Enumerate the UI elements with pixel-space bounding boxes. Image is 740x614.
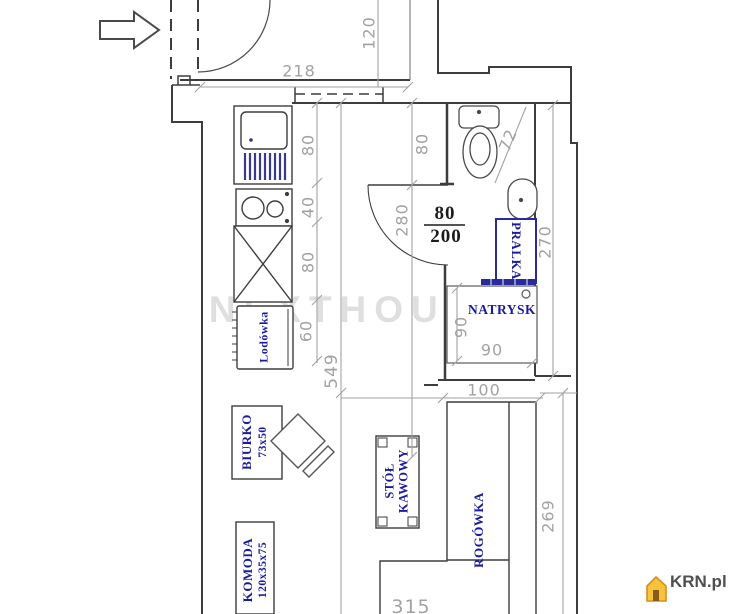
dim-bath-length: 270 (536, 225, 555, 259)
desk-label: BIURKO (239, 414, 255, 470)
coffee-table-label-2: KAWOWY (397, 449, 412, 513)
dim-entry-depth: 120 (360, 16, 379, 50)
krn-house-icon (647, 577, 666, 601)
fridge-label: Lodówka (257, 311, 272, 363)
dim-fridge: 60 (297, 320, 316, 342)
dresser-size-label: 120x35x75 (257, 542, 269, 598)
sink-drainer (245, 153, 285, 180)
shower-label: NATRYSK (468, 302, 536, 318)
dim-entry-width: 218 (282, 62, 316, 81)
dim-room-length: 549 (322, 353, 342, 388)
dim-sink: 80 (299, 134, 318, 156)
floor-plan-drawing (0, 0, 740, 614)
kitchen-cabinet (234, 226, 292, 302)
dim-shower-width: 90 (481, 341, 503, 360)
door-size-height: 200 (430, 226, 462, 248)
coffee-table-label-1: STÓŁ (383, 463, 398, 498)
bathroom-sink (508, 179, 537, 219)
corner-sofa-label: ROGÓWKA (471, 492, 487, 568)
dim-bath-width: 100 (467, 381, 501, 400)
dim-cabinet: 80 (299, 251, 318, 273)
logo-text: KRN.pl (670, 572, 727, 592)
dim-shower-depth: 90 (452, 316, 471, 338)
dresser-label: KOMODA (240, 538, 256, 602)
dim-living-width: 315 (391, 596, 430, 614)
dim-hob: 40 (299, 196, 318, 218)
entrance-arrow-icon (100, 12, 159, 48)
toilet (459, 106, 499, 178)
kitchen-sink-unit (234, 106, 292, 184)
washer-label: PRALKA (508, 222, 524, 280)
floor-plan: NEXTHOUSE (0, 0, 740, 614)
kitchen-hob (236, 189, 292, 226)
entrance-door (198, 0, 270, 72)
dim-door-wall: 280 (393, 203, 412, 237)
door-size-width: 80 (435, 203, 456, 225)
dim-corridor: 80 (413, 133, 432, 155)
desk-size-label: 73x50 (257, 426, 269, 457)
dim-living-length: 269 (539, 499, 558, 533)
